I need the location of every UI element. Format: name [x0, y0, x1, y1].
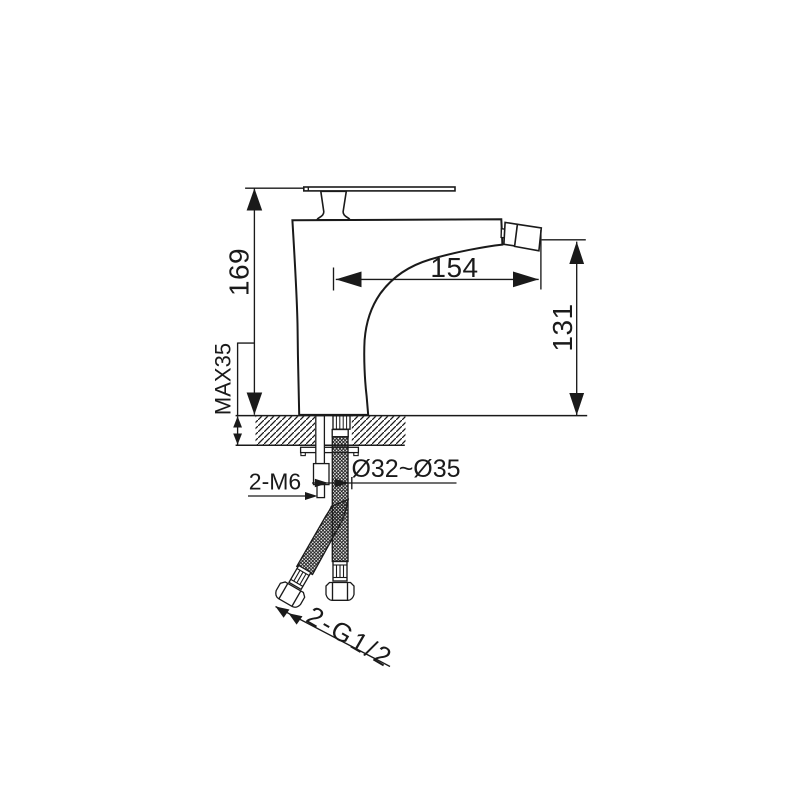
svg-text:131: 131	[547, 303, 578, 351]
svg-text:MAX35: MAX35	[211, 343, 236, 415]
svg-text:169: 169	[224, 248, 255, 296]
svg-text:154: 154	[430, 252, 478, 283]
svg-text:2-M6: 2-M6	[249, 469, 301, 495]
svg-text:Ø32~Ø35: Ø32~Ø35	[351, 455, 460, 483]
